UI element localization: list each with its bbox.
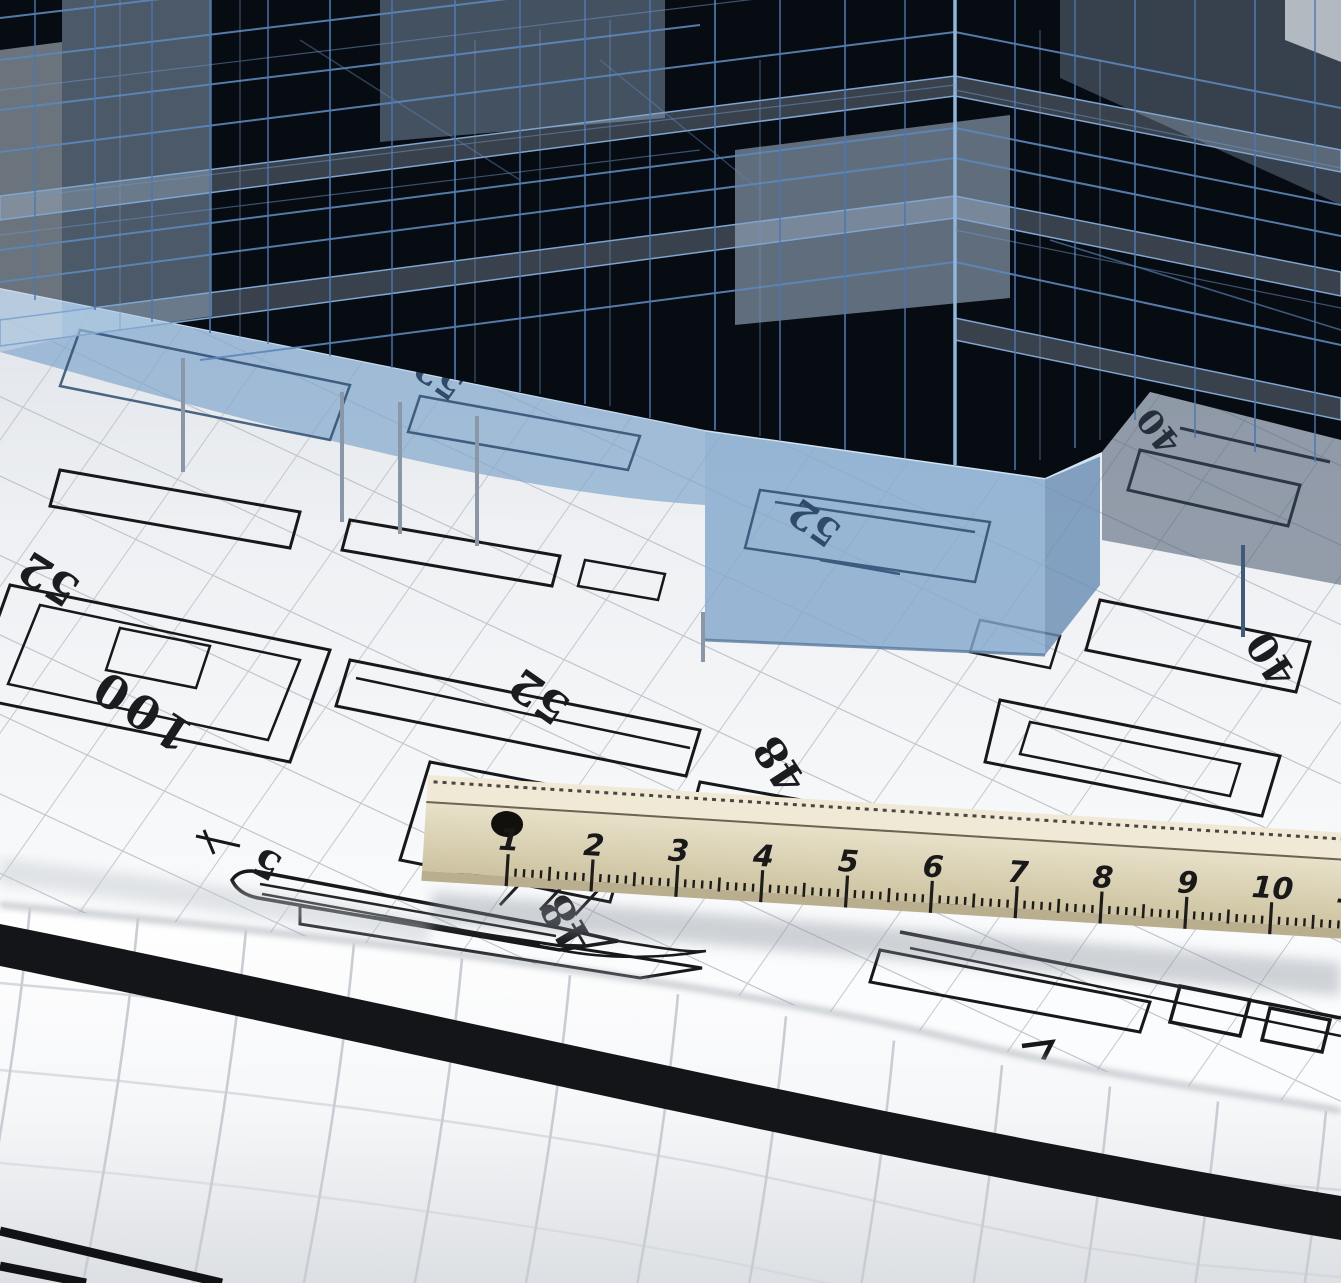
- ruler-unit-10: 10: [1251, 870, 1295, 908]
- blueprint-scene: 52 100 52 48 40 5 48 40 52 5: [0, 0, 1341, 1283]
- ruler-unit-9: 9: [1176, 865, 1199, 901]
- ruler-unit-6: 6: [922, 849, 945, 885]
- ruler-unit-4: 4: [751, 839, 775, 875]
- ruler-unit-2: 2: [582, 828, 605, 864]
- ruler-unit-3: 3: [667, 833, 690, 869]
- ruler-unit-7: 7: [1007, 855, 1030, 891]
- ruler-unit-5: 5: [837, 844, 860, 880]
- ruler-unit-8: 8: [1091, 860, 1114, 896]
- ruler-unit-1: 1: [498, 823, 521, 859]
